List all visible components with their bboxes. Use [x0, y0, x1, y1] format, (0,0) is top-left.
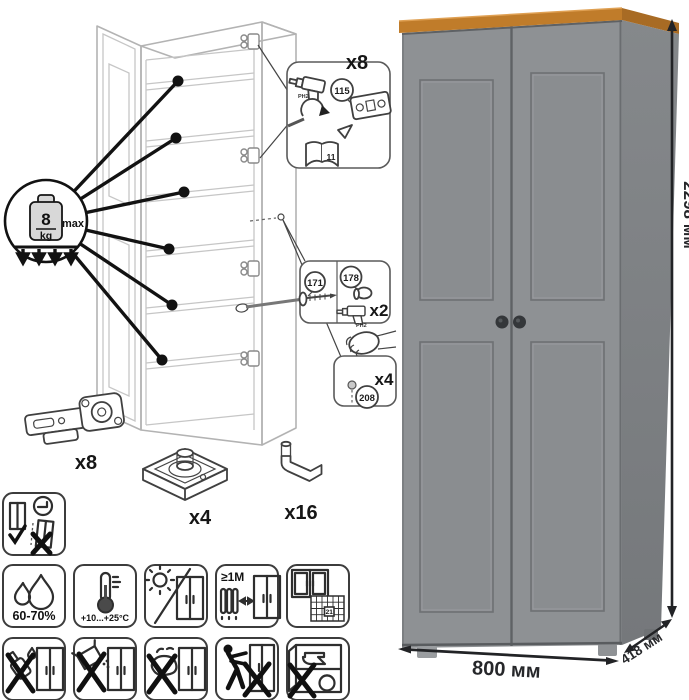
cap-icon — [354, 288, 372, 300]
foot-hardware-count: x4 — [189, 507, 212, 529]
screw-callout-count: x2 — [370, 301, 389, 320]
hinge-part-id: 115 — [334, 86, 350, 97]
temperature-range: +10...+25°C — [81, 613, 130, 623]
care-icon-temperature: +10...+25°C — [74, 565, 136, 627]
hinge-callout-count: x8 — [346, 52, 368, 74]
cap-callout-count: x4 — [375, 370, 394, 389]
hardware-hinge: x8 — [23, 392, 126, 474]
calendar-icon: 21 — [311, 596, 344, 621]
care-icon-no-abrasives — [72, 638, 136, 700]
hardware-foot: x4 — [143, 449, 227, 529]
left-door-knob — [496, 316, 509, 329]
side-panel — [622, 20, 679, 645]
left-door — [420, 80, 493, 612]
foot-front-right — [598, 644, 617, 656]
screw-part-id: 171 — [307, 278, 324, 289]
hand-icon — [347, 329, 397, 357]
hinge-hardware-count: x8 — [75, 452, 97, 474]
weight-icon: 8 kg — [30, 195, 62, 242]
pin-hardware-count: x16 — [284, 502, 317, 524]
manual-book-icon: 11 — [306, 142, 338, 166]
humidity-range: 60-70% — [12, 609, 55, 623]
ventilation-day: 21 — [326, 609, 334, 616]
drill-bit-label: PH2 — [298, 94, 309, 100]
care-icon-no-liquids — [3, 638, 65, 700]
care-icon-no-dragging — [216, 638, 278, 700]
cap-callout-part-id: 208 — [359, 393, 375, 404]
right-door — [531, 73, 604, 611]
care-icon-heater-distance: ≥1М — [216, 565, 280, 627]
care-icon-no-scrubbing — [145, 638, 207, 700]
wardrobe-photo — [399, 8, 679, 658]
cap-part-id: 178 — [343, 273, 359, 284]
min-distance-label: ≥1М — [221, 570, 244, 584]
sheet-svg: 8 kg max x8 PH2 115 — [0, 0, 689, 700]
dimension-width: 800 мм — [398, 646, 619, 683]
cap-callout: x4 208 — [334, 329, 396, 408]
manual-page: 11 — [327, 152, 336, 162]
hinge-callout: x8 PH2 115 11 — [287, 52, 392, 168]
right-door-knob — [513, 316, 526, 329]
care-icon-ventilation: 21 — [287, 565, 349, 627]
weight-value: 8 — [41, 210, 50, 229]
wall-anchor-icon — [3, 493, 65, 555]
care-icon-no-sunlight — [145, 565, 207, 627]
height-label: 2298 мм — [680, 181, 689, 249]
shelves — [146, 73, 254, 369]
weight-unit: kg — [40, 230, 52, 242]
hardware-shelf-pin: x16 — [282, 442, 322, 524]
instruction-sheet: 8 kg max x8 PH2 115 — [0, 0, 689, 700]
weight-max-label: max — [62, 218, 85, 230]
care-icon-no-heavy-items — [287, 638, 349, 700]
drill-bit-label-2: PH2 — [356, 323, 367, 329]
hinge-marks — [241, 34, 259, 366]
care-icon-humidity: 60-70% — [3, 565, 65, 627]
width-label: 800 мм — [472, 657, 542, 683]
